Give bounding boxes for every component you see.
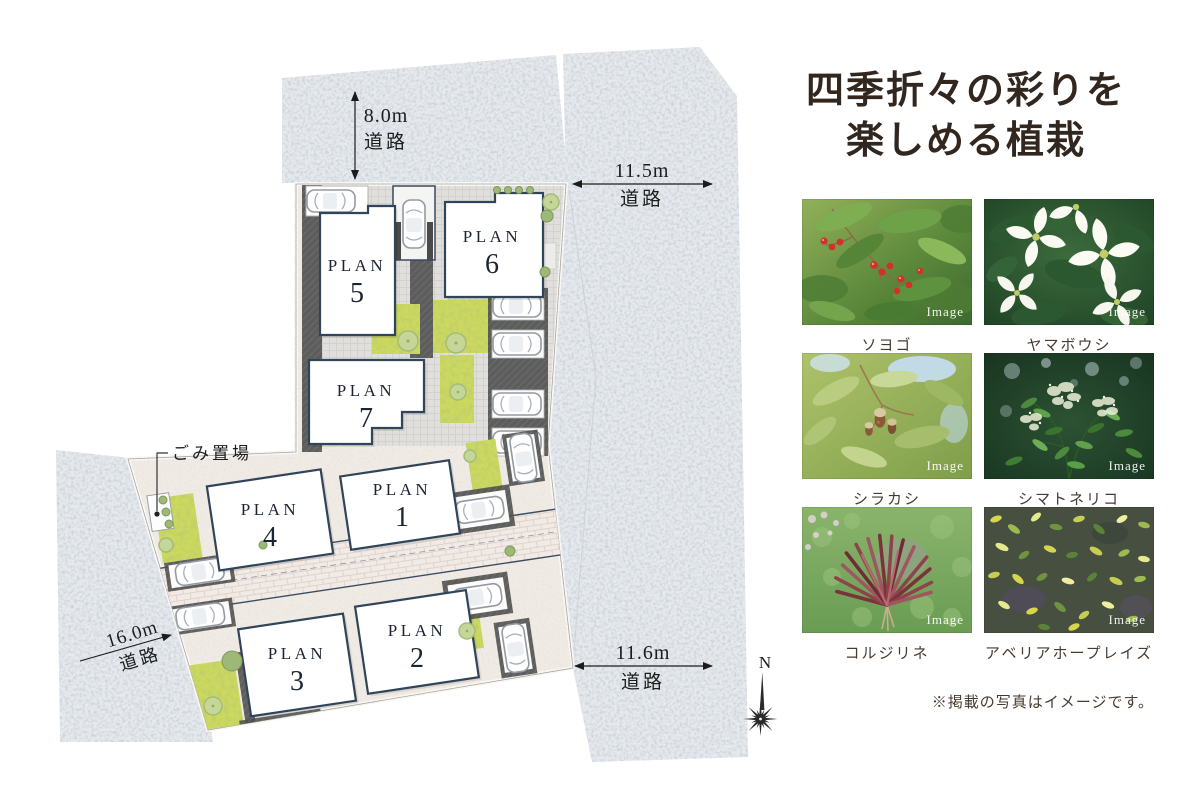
plant-item-cordyline: Image コルジリネ: [802, 507, 972, 661]
svg-text:11.6m: 11.6m: [616, 642, 671, 664]
plant-photo-soyogo: Image: [802, 199, 972, 325]
svg-text:6: 6: [485, 249, 499, 280]
plant-photo-shirakashi: Image: [802, 353, 972, 479]
plant-item-abelia: Image アベリアホープレイズ: [984, 507, 1154, 661]
image-watermark: Image: [1109, 458, 1146, 473]
image-watermark: Image: [1109, 304, 1146, 319]
image-watermark: Image: [927, 304, 964, 319]
svg-text:1: 1: [395, 502, 409, 533]
plant-photo-yamaboushi: Image: [984, 199, 1154, 325]
page-title-line2: 楽しめる植栽: [846, 120, 1086, 162]
photo-disclaimer-note: ※掲載の写真はイメージです。: [802, 691, 1154, 712]
road-top: [282, 55, 568, 183]
car-icon: [493, 333, 541, 355]
page-title: 四季折々の彩りを楽しめる植栽: [776, 0, 1156, 166]
svg-text:PLAN: PLAN: [388, 621, 446, 640]
svg-text:道路: 道路: [620, 188, 664, 210]
svg-text:道路: 道路: [621, 671, 665, 693]
svg-text:道路: 道路: [364, 131, 408, 153]
car-icon: [307, 190, 355, 212]
image-watermark: Image: [927, 458, 964, 473]
plant-name: ソヨゴ: [802, 325, 972, 353]
car-icon: [403, 200, 425, 248]
svg-text:5: 5: [350, 278, 364, 309]
image-watermark: Image: [927, 612, 964, 627]
plant-photo-grid: Image ソヨゴ Image: [802, 199, 1154, 661]
page-title-line1: 四季折々の彩りを: [806, 70, 1126, 112]
svg-text:PLAN: PLAN: [241, 500, 299, 519]
svg-text:8.0m: 8.0m: [364, 105, 409, 127]
svg-text:11.5m: 11.5m: [615, 160, 670, 182]
plant-name: アベリアホープレイズ: [984, 633, 1154, 661]
image-watermark: Image: [1109, 612, 1146, 627]
plant-item-soyogo: Image ソヨゴ: [802, 199, 972, 353]
plant-name: シマトネリコ: [984, 479, 1154, 507]
svg-text:PLAN: PLAN: [268, 644, 326, 663]
svg-text:7: 7: [359, 403, 373, 434]
plant-item-shirakashi: Image シラカシ: [802, 353, 972, 507]
svg-text:PLAN: PLAN: [373, 480, 431, 499]
plant-name: シラカシ: [802, 479, 972, 507]
building-plan-6: [445, 193, 546, 300]
plants-panel: 四季折々の彩りを楽しめる植栽 Image: [776, 0, 1156, 800]
plant-photo-cordyline: Image: [802, 507, 972, 633]
svg-text:2: 2: [410, 643, 424, 674]
car-icon: [493, 393, 541, 415]
compass: N: [744, 653, 778, 736]
svg-text:ごみ置場: ごみ置場: [172, 444, 252, 463]
svg-text:3: 3: [290, 666, 304, 697]
plant-photo-abelia: Image: [984, 507, 1154, 633]
site-plan: PLAN 5 PLAN 6 PLAN 7 PLAN 4 PLAN 1 PLAN …: [0, 0, 790, 800]
plant-name: コルジリネ: [802, 633, 972, 661]
plant-item-yamaboushi: Image ヤマボウシ: [984, 199, 1154, 353]
svg-text:4: 4: [263, 522, 277, 553]
svg-text:PLAN: PLAN: [337, 381, 395, 400]
plant-item-shimatoneriko: Image シマトネリコ: [984, 353, 1154, 507]
plant-photo-shimatoneriko: Image: [984, 353, 1154, 479]
page: PLAN 5 PLAN 6 PLAN 7 PLAN 4 PLAN 1 PLAN …: [0, 0, 1200, 800]
svg-text:PLAN: PLAN: [328, 256, 386, 275]
plant-name: ヤマボウシ: [984, 325, 1154, 353]
svg-text:PLAN: PLAN: [463, 227, 521, 246]
svg-text:N: N: [759, 653, 771, 672]
